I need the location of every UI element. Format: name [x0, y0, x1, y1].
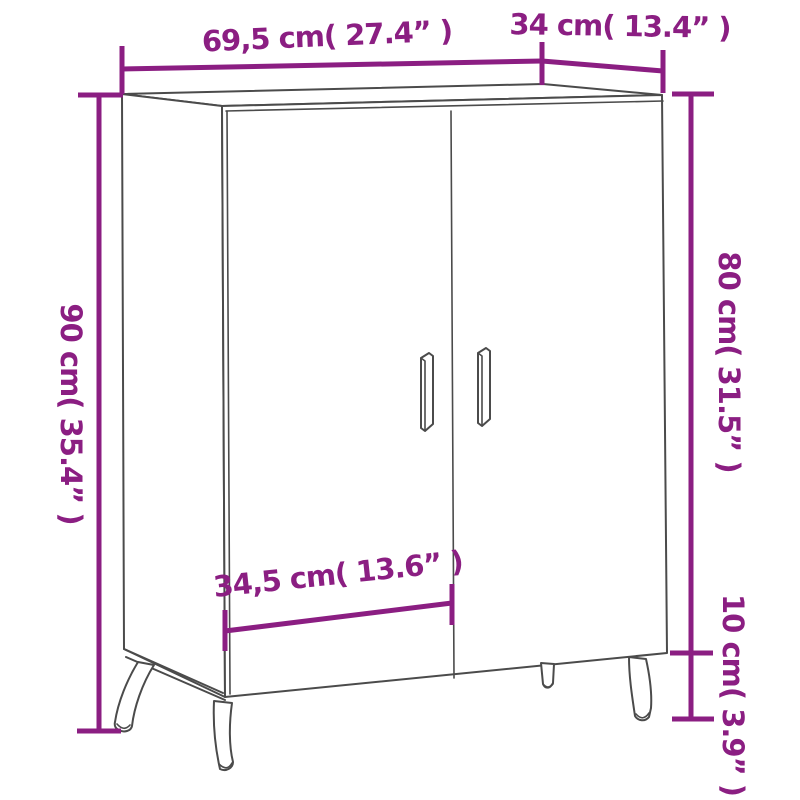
right-handle-body — [478, 348, 490, 426]
leg-height-dimension-label: 10 cm( 3.9” ) — [716, 594, 750, 796]
left-door-handle — [421, 353, 433, 431]
leg-front-right — [629, 657, 651, 720]
left-handle-body — [421, 353, 433, 431]
cabinet-side-panel — [122, 94, 225, 697]
depth-dimension-line — [542, 61, 663, 71]
right-door-handle — [478, 348, 490, 426]
leg-back-left — [115, 662, 154, 731]
width-dimension-line — [122, 61, 542, 69]
body-height-dimension-label: 80 cm( 31.5” ) — [712, 251, 746, 472]
product-dimension-diagram: 69,5 cm( 27.4” ) 34 cm( 13.4” ) 90 cm( 3… — [0, 0, 800, 800]
leg-front-left — [214, 701, 233, 770]
cabinet-illustration — [115, 84, 667, 770]
diagram-svg: 69,5 cm( 27.4” ) 34 cm( 13.4” ) 90 cm( 3… — [0, 0, 800, 800]
width-dimension-label: 69,5 cm( 27.4” ) — [201, 14, 453, 59]
cabinet-front-face — [222, 95, 667, 697]
depth-dimension-label: 34 cm( 13.4” ) — [509, 7, 731, 45]
height-dimension-label: 90 cm( 35.4” ) — [54, 303, 88, 524]
